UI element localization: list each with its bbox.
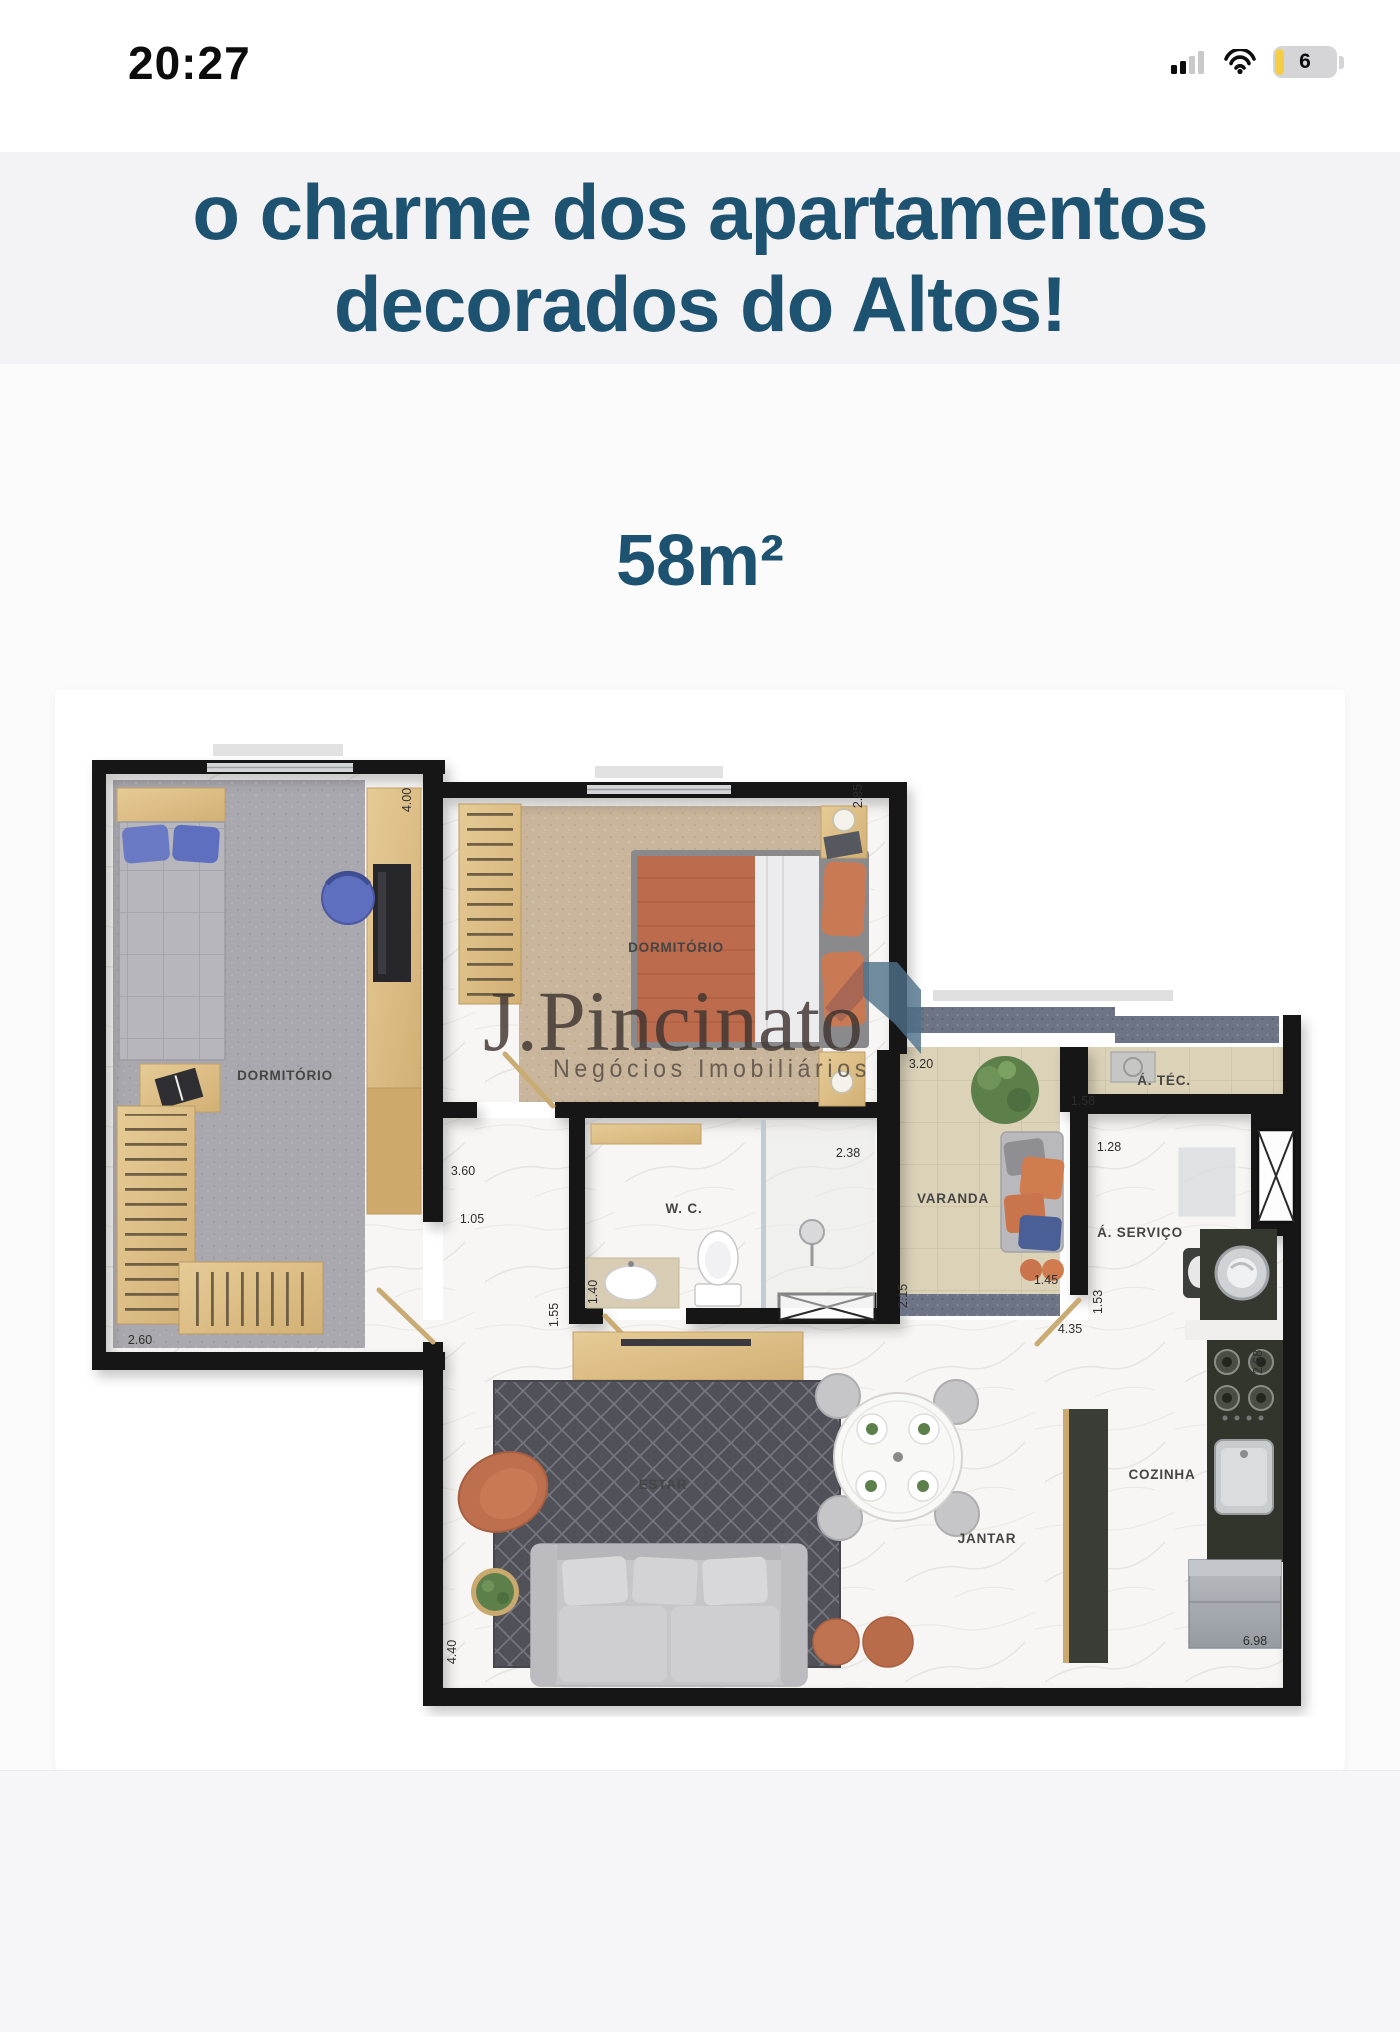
dim-4-35: 4.35: [1058, 1322, 1082, 1336]
balcony-plant: [971, 1056, 1039, 1124]
dim-2-85: 2.85: [851, 784, 865, 808]
screen: 20:27 6 o charme: [0, 0, 1400, 2032]
floor-plan-image: DORMITÓRIO DORMITÓRIO W. C. VARANDA Á. T…: [55, 690, 1345, 1770]
balcony-edge-strip2: [1115, 1016, 1279, 1043]
battery-icon: 6: [1273, 46, 1344, 78]
label-living: ESTAR: [639, 1477, 688, 1492]
ottoman2: [863, 1617, 913, 1667]
wc-shelf: [591, 1124, 701, 1144]
bed2-pillow1: [821, 861, 867, 937]
dim-2-38: 2.38: [836, 1146, 860, 1160]
label-dining: JANTAR: [958, 1531, 1017, 1546]
desk-tv-unit1: [367, 788, 421, 1214]
kitchen-counter: [1207, 1340, 1283, 1562]
soundbar: [621, 1339, 751, 1346]
tall-cabinet: [1063, 1409, 1108, 1663]
kitchen-sink: [1215, 1440, 1273, 1514]
watermark: J.Pincinato Negócios Imobiliários: [483, 962, 921, 1083]
dim-4-00: 4.00: [400, 788, 414, 812]
sideboard: [573, 1332, 803, 1380]
dim-1-55: 1.55: [547, 1303, 561, 1327]
fridge: [1189, 1560, 1281, 1648]
dim-2-60: 2.60: [128, 1333, 152, 1347]
desk-chair1: [322, 872, 374, 924]
toilet: [695, 1231, 741, 1306]
counter-ledge: [1185, 1320, 1283, 1340]
living-plant: [471, 1568, 519, 1616]
nightstand-top: [821, 806, 867, 859]
dim-2-15: 2.15: [896, 1284, 910, 1308]
balcony-sliding-door: [900, 1294, 1060, 1316]
ottoman1: [813, 1619, 859, 1665]
battery-percent: 6: [1299, 50, 1311, 74]
bottom-band: [0, 1770, 1400, 2032]
shaft: [1258, 1130, 1294, 1222]
floor-plan-svg: DORMITÓRIO DORMITÓRIO W. C. VARANDA Á. T…: [55, 702, 1345, 1717]
washing-machine: [1200, 1229, 1277, 1320]
label-bedroom2: DORMITÓRIO: [628, 940, 724, 955]
dim-1-05: 1.05: [460, 1212, 484, 1226]
service-glass-box: [1177, 1146, 1237, 1218]
label-service: Á. SERVIÇO: [1097, 1225, 1183, 1240]
area-size-label: 58m²: [0, 520, 1400, 602]
label-balcony: VARANDA: [917, 1191, 989, 1206]
balcony-edge-strip: [900, 1007, 1115, 1033]
headline-line1: o charme dos apartamentos: [192, 166, 1207, 258]
sofa: [531, 1544, 807, 1686]
wc-sink: [587, 1258, 679, 1308]
dim-2-68: 2.68: [1251, 1350, 1265, 1374]
dim-1-53: 1.53: [1091, 1290, 1105, 1314]
status-time: 20:27: [128, 36, 251, 90]
dim-1-45: 1.45: [1034, 1273, 1058, 1287]
dim-3-20: 3.20: [909, 1057, 933, 1071]
dim-1-28: 1.28: [1097, 1140, 1121, 1154]
wifi-icon: [1223, 49, 1257, 75]
battery-charge: [1275, 49, 1284, 75]
battery-tip: [1339, 56, 1344, 69]
dim-4-40: 4.40: [445, 1640, 459, 1664]
dim-3-60: 3.60: [451, 1164, 475, 1178]
status-bar: 20:27 6: [0, 0, 1400, 152]
dim-1-40: 1.40: [586, 1280, 600, 1304]
label-technical: Á. TÉC.: [1137, 1073, 1191, 1088]
balcony-sofa: [1001, 1132, 1065, 1252]
status-icons: 6: [1171, 46, 1344, 78]
dim-6-98: 6.98: [1243, 1634, 1267, 1648]
cellular-signal-icon: [1171, 49, 1207, 75]
label-kitchen: COZINHA: [1128, 1467, 1195, 1482]
watermark-tagline: Negócios Imobiliários: [553, 1055, 871, 1083]
label-wc: W. C.: [666, 1201, 703, 1216]
shower-glass: [761, 1120, 766, 1308]
headline-line2: decorados do Altos!: [334, 258, 1066, 350]
dim-1-58: 1.58: [1071, 1094, 1095, 1108]
label-bedroom1: DORMITÓRIO: [237, 1068, 333, 1083]
dining-set: [816, 1374, 979, 1540]
headline: o charme dos apartamentos decorados do A…: [0, 152, 1400, 364]
bed1-headboard: [117, 788, 225, 822]
